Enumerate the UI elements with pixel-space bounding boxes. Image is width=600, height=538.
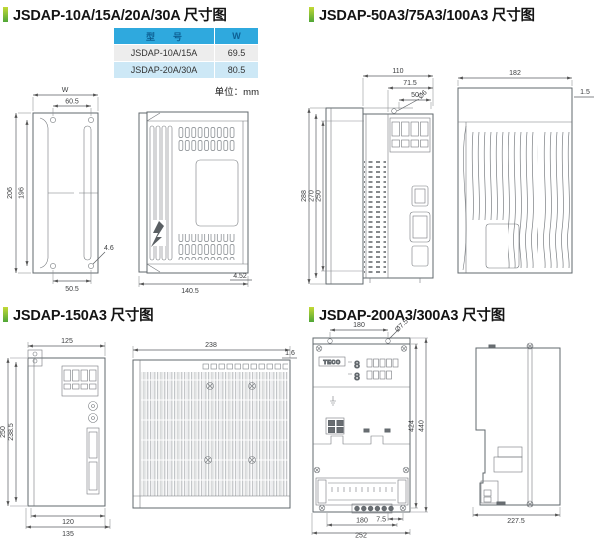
dim-bottom-offset: 7.5 [376,517,386,524]
dim-height-mid: 270 [309,190,316,202]
dim-height-outer: 250 [0,426,7,438]
dim-hole-dia: 4.6 [104,245,114,252]
brand-logo: TECO [323,360,341,366]
dim-bottom-outer: 135 [62,531,74,538]
side-view: 140.5 4.52 [139,112,252,295]
dim-width-top: W [62,87,69,94]
dim-bottom-hole-span: 180 [356,518,368,525]
manual-page: JSDAP-10A/15A/20A/30A 尺寸图 型 号 W JSDAP-10… [0,0,600,538]
cell-model: JSDAP-20A/30A [114,62,215,79]
drawing-jsdap-50a3-100a3: 110 71.5 50 Ø6 288 270 [300,0,600,300]
front-view-mounting-plate: W 60.5 206 196 50.5 4.6 [7,87,114,293]
dim-foot: 4.52 [233,273,247,280]
accent-bar-icon [3,307,8,322]
section-header: JSDAP-50A3/75A3/100A3 尺寸图 [309,4,535,25]
cell-model: JSDAP-10A/15A [114,45,215,62]
dim-height-outer: 288 [301,190,308,202]
dim-depth: 140.5 [181,288,199,295]
section-header: JSDAP-200A3/300A3 尺寸图 [309,304,505,325]
dim-bottom-inner: 120 [62,519,74,526]
accent-bar-icon [3,7,8,22]
section-title: JSDAP-10A/15A/20A/30A 尺寸图 [13,4,227,25]
dim-height-inner: 424 [409,420,416,432]
dim-height-outer: 440 [419,420,426,432]
dim-height-inner: 196 [19,187,26,199]
dim-depth: 182 [509,70,521,77]
dimensions: 227.5 [473,507,560,525]
dim-height-inner: 250 [316,190,323,202]
dimensions: 125 250 238.5 120 135 [0,338,110,538]
accent-bar-icon [309,307,314,322]
ground-symbol-icon [330,396,336,405]
seg-digit-top: 8 [354,360,360,371]
col-header-model: 型 号 [114,28,215,45]
unit-label: 单位：mm [185,84,259,98]
table-header-row: 型 号 W [114,28,259,45]
dim-top-mid: 71.5 [403,80,417,87]
accent-bar-icon [309,7,314,22]
section-title: JSDAP-50A3/75A3/100A3 尺寸图 [319,4,535,25]
cell-w: 69.5 [215,45,259,62]
front-view: 125 250 238.5 120 135 [0,338,110,538]
cell-w: 80.5 [215,62,259,79]
section-jsdap-150a3: JSDAP-150A3 尺寸图 [0,300,300,538]
section-header: JSDAP-10A/15A/20A/30A 尺寸图 [3,4,227,25]
section-jsdap-50a3-100a3: JSDAP-50A3/75A3/100A3 尺寸图 [300,0,600,300]
front-view: 110 71.5 50 Ø6 288 270 [301,68,433,284]
side-view: 238 1.6 [133,342,297,508]
dim-hole-span-top: 60.5 [65,99,79,106]
dim-depth: 227.5 [507,518,525,525]
section-jsdap-200a3-300a3: JSDAP-200A3/300A3 尺寸图 [300,300,600,538]
side-view: 227.5 [473,343,560,525]
dim-hole-span-bottom: 50.5 [65,286,79,293]
screw-icon [314,467,409,473]
section-header: JSDAP-150A3 尺寸图 [3,304,153,325]
col-header-w: W [215,28,259,45]
dim-height-inner: 238.5 [8,423,15,441]
section-jsdap-10a-30a: JSDAP-10A/15A/20A/30A 尺寸图 型 号 W JSDAP-10… [0,0,300,300]
dim-panel-thickness: 1.5 [580,89,590,96]
side-view: 182 1.5 [458,70,594,273]
table-row: JSDAP-20A/30A 80.5 [114,62,259,79]
section-title: JSDAP-200A3/300A3 尺寸图 [319,304,505,325]
dim-width-top: 125 [61,338,73,345]
drawing-jsdap-150a3: 125 250 238.5 120 135 [0,300,300,538]
dimensions: 182 1.5 [458,70,594,97]
dimensions: 140.5 4.52 [139,273,252,295]
dim-top-outer: 110 [392,68,403,75]
dim-bottom-outer: 252 [355,533,367,538]
front-view: TECO 8 8 [312,318,428,538]
table-row: JSDAP-10A/15A 69.5 [114,45,259,62]
dim-height-outer: 206 [7,187,14,199]
drawing-jsdap-200a3-300a3: TECO 8 8 [300,300,600,538]
dimensions: 238 1.6 [133,342,297,358]
dim-depth: 238 [205,342,217,349]
screw-icon [316,346,407,352]
dimension-table: 型 号 W JSDAP-10A/15A 69.5 JSDAP-20A/30A 8… [113,27,259,79]
section-title: JSDAP-150A3 尺寸图 [13,304,153,325]
dim-panel-thickness: 1.6 [285,350,295,357]
seg-digit-bottom: 8 [354,372,360,383]
